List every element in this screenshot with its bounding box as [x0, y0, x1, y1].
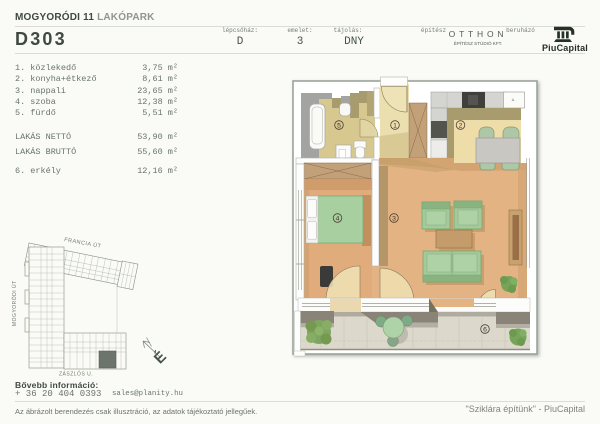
svg-text:FRANCIA ÚT: FRANCIA ÚT — [64, 236, 102, 250]
svg-text:É: É — [151, 348, 170, 367]
svg-text:ZÁSZLÓS U.: ZÁSZLÓS U. — [59, 371, 93, 378]
svg-text:MOGYORÓDI ÚT: MOGYORÓDI ÚT — [11, 280, 18, 326]
